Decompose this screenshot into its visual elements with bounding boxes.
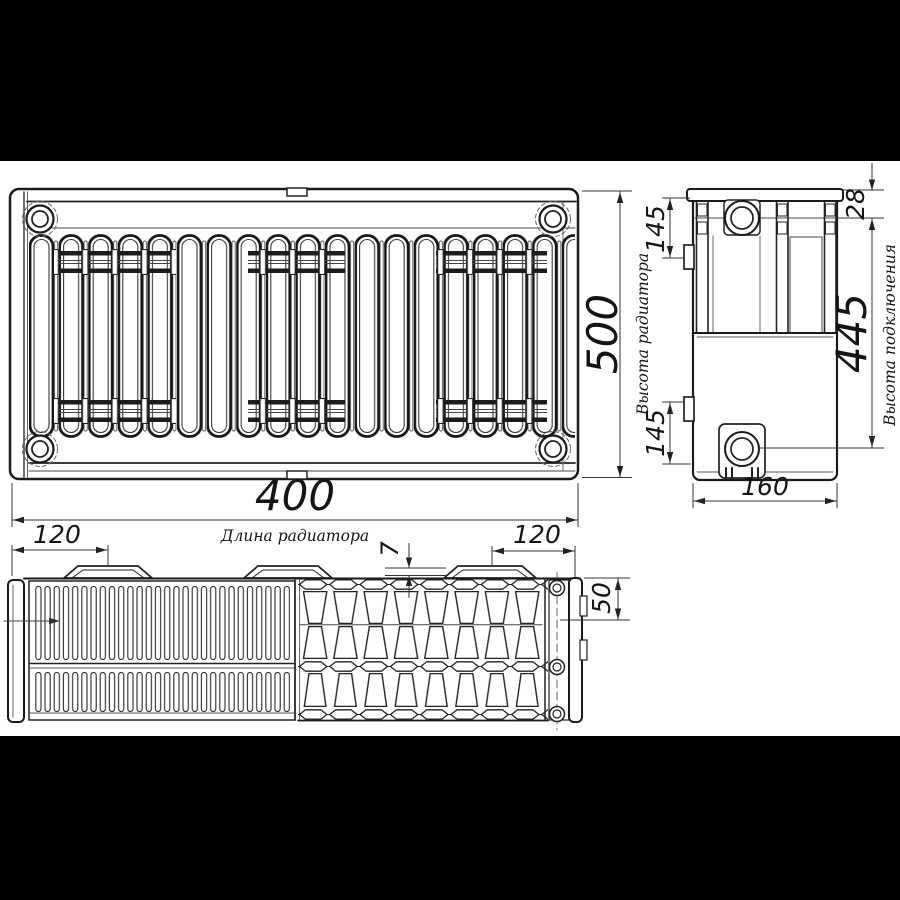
tie-band	[436, 398, 547, 424]
wall-bracket-upper	[684, 245, 694, 269]
front-view	[10, 188, 578, 479]
dim-top-depth-offset-value: 50	[587, 582, 616, 614]
tie-band	[248, 398, 345, 424]
dim-bracket-plate-thickness-value: 7	[376, 541, 404, 557]
dim-length-value: 400	[255, 471, 335, 520]
tie-band	[54, 249, 176, 275]
tie-band	[436, 249, 547, 275]
dim-depth-value: 160	[741, 472, 789, 501]
dim-connection-height-label: Высота подключения	[881, 244, 899, 427]
tie-band	[54, 398, 176, 424]
dim-height-label: Высота радиатора	[634, 253, 652, 416]
top-pipe-connection	[724, 200, 760, 235]
dim-bracket-offset-right-value: 120	[513, 520, 561, 549]
dim-connection-height-value: 445	[827, 293, 876, 373]
convector-section-cutaway	[298, 578, 548, 721]
dim-top-bracket-offset-value: 145	[641, 205, 670, 253]
right-end-assembly	[545, 572, 587, 730]
bottom-pipe-connection	[719, 424, 765, 478]
dim-height-value: 500	[578, 294, 627, 374]
left-end-cap	[8, 580, 24, 722]
dim-length-label: Длина радиатора	[220, 527, 369, 545]
dim-top-pipe-offset-value: 28	[841, 188, 870, 220]
dim-bracket-offset-left-value: 120	[33, 520, 81, 549]
air-vent-tab-top	[287, 188, 307, 196]
wall-bracket-lower	[684, 397, 694, 421]
dim-bottom-bracket-offset-value: 145	[641, 409, 670, 457]
letterbox-bottom	[0, 736, 900, 900]
side-view	[684, 189, 843, 480]
mounting-brackets	[64, 566, 536, 578]
radiator-drawing: 400 Длина радиатора 500 Высота радиатора…	[0, 0, 900, 900]
letterbox-top	[0, 0, 900, 161]
drawing-canvas: 400 Длина радиатора 500 Высота радиатора…	[0, 0, 900, 900]
tie-band	[248, 249, 345, 275]
bottom-view	[4, 566, 587, 730]
